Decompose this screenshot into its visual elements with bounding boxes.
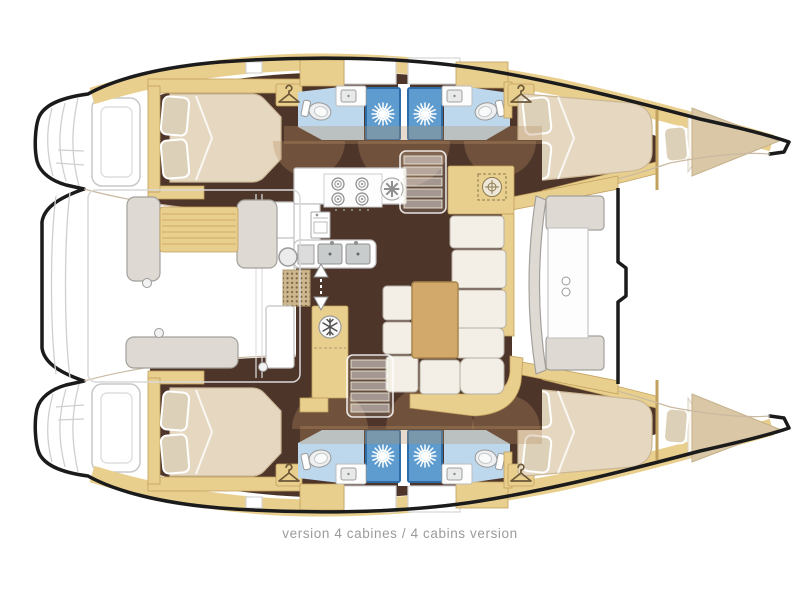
settee-cushion xyxy=(383,322,413,354)
settee-cushion xyxy=(420,360,460,394)
floor-plan-canvas: version 4 cabines / 4 cabins version xyxy=(0,0,800,600)
forward-bench xyxy=(546,336,604,370)
corner-unit-icon xyxy=(483,178,502,197)
settee-cushion xyxy=(450,216,504,248)
deck-fitting xyxy=(143,279,152,288)
caption: version 4 cabines / 4 cabins version xyxy=(0,526,800,541)
cockpit-seat xyxy=(127,197,160,281)
entry-mat xyxy=(283,270,310,306)
cockpit-table xyxy=(160,207,238,252)
deck-fitting xyxy=(259,363,268,372)
cupholder xyxy=(562,277,570,285)
cockpit-seat xyxy=(237,200,277,268)
companionway-stairs-port xyxy=(400,151,446,213)
settee-cushion xyxy=(452,290,506,328)
oven xyxy=(311,212,330,238)
cockpit-bench xyxy=(126,337,238,368)
porthole xyxy=(279,248,297,266)
companionway-stairs-starboard xyxy=(347,355,393,417)
forward-beam xyxy=(618,188,626,384)
forward-cockpit xyxy=(512,176,626,394)
settee-cushion xyxy=(383,286,413,320)
deck-fitting xyxy=(155,329,164,338)
settee-cushion xyxy=(454,328,504,358)
salon-table xyxy=(412,282,458,358)
settee-cushion xyxy=(460,358,504,394)
forward-bench xyxy=(546,196,604,230)
cupholder xyxy=(562,288,570,296)
galley-sink xyxy=(294,240,376,268)
aft-cockpit xyxy=(42,189,300,382)
settee-cushion xyxy=(452,250,506,288)
catamaran-floor-plan xyxy=(0,0,800,600)
